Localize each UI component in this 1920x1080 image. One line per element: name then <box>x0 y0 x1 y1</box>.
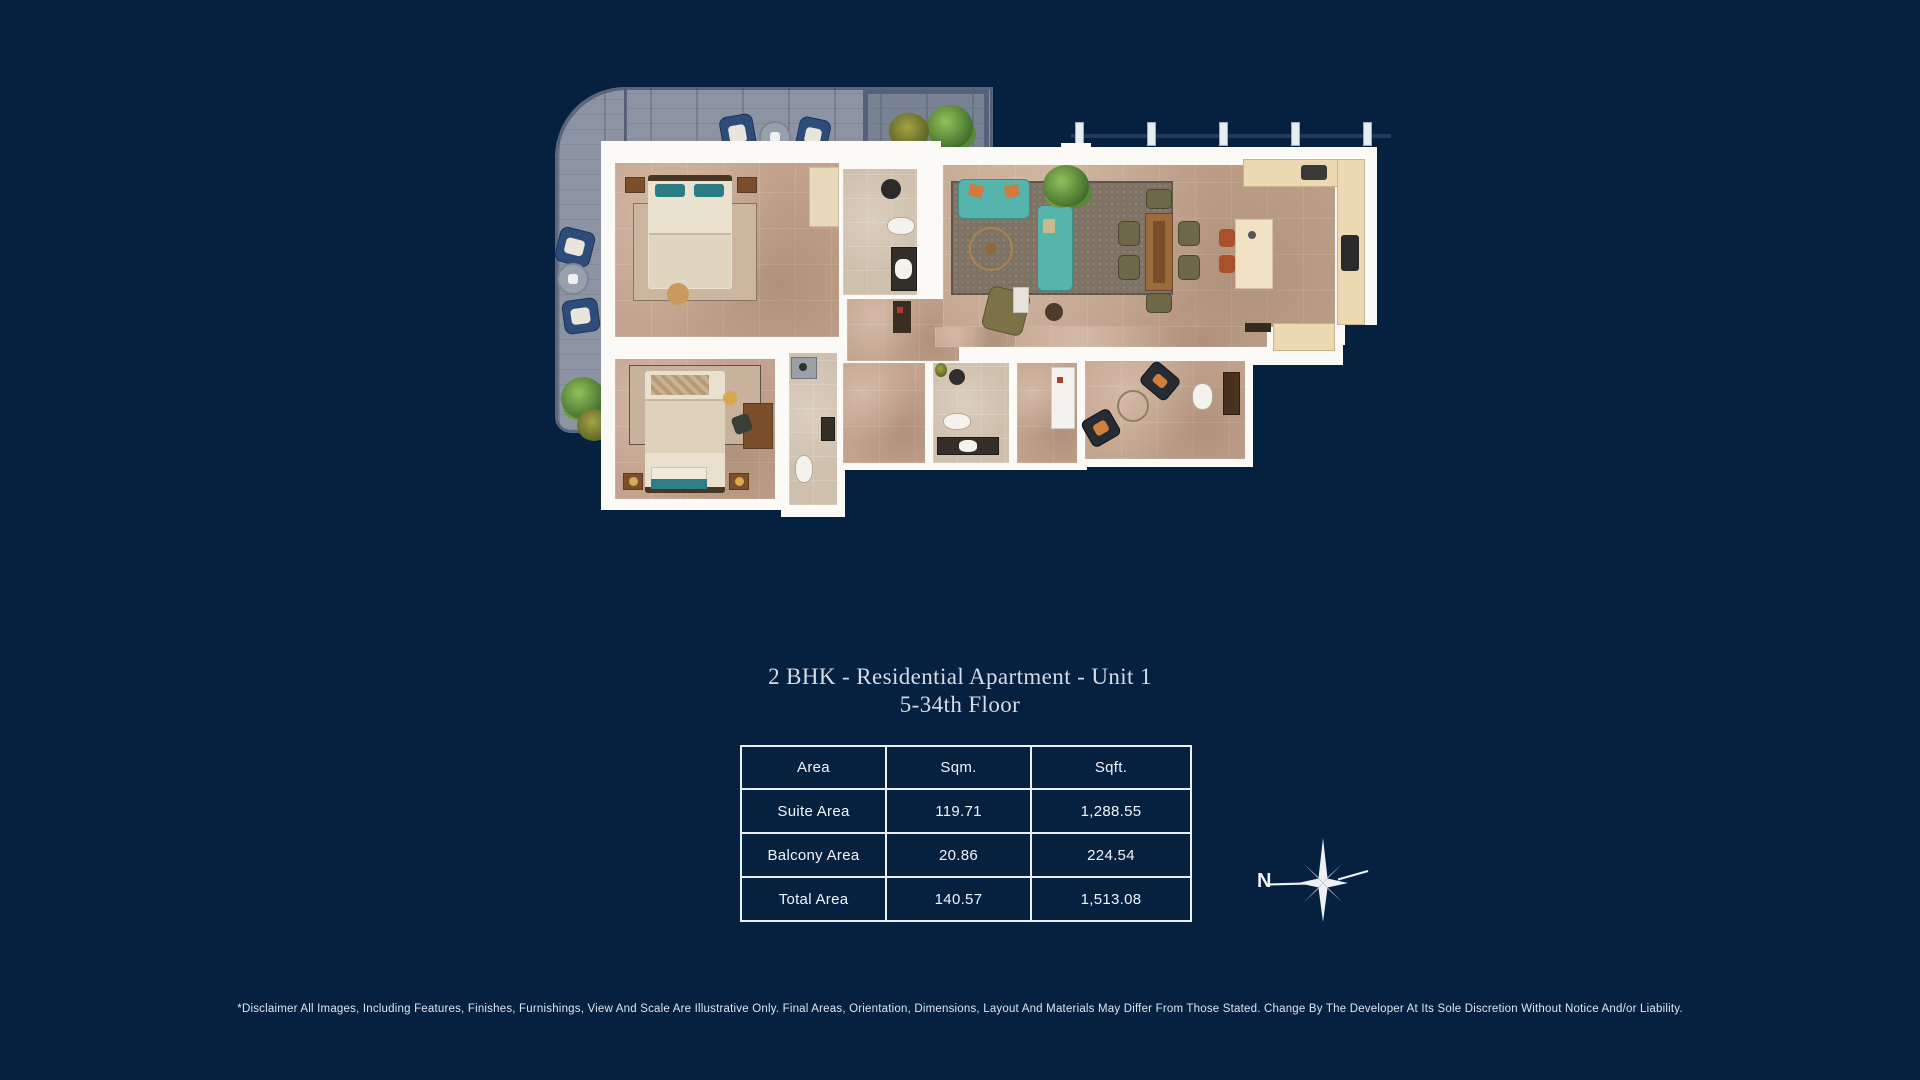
window-mullion <box>1219 122 1228 146</box>
bathroom-plant <box>935 363 947 377</box>
window-mullion <box>1147 122 1156 146</box>
balcony-armchair <box>561 297 601 336</box>
kitchen-sink <box>1301 165 1327 180</box>
sqm-value: 20.86 <box>886 833 1031 877</box>
toilet <box>1192 383 1213 410</box>
dining-chair <box>1178 221 1200 246</box>
toilet <box>795 455 813 483</box>
row-label: Suite Area <box>741 789 886 833</box>
dining-chair <box>1118 255 1140 280</box>
area-table: Area Sqm. Sqft. Suite Area 119.71 1,288.… <box>740 745 1192 922</box>
entry-shelf <box>893 301 911 333</box>
kitchen-island <box>1235 219 1273 289</box>
plan-title-line2: 5-34th Floor <box>0 691 1920 719</box>
hall-floor <box>843 363 925 463</box>
kitchen-counter <box>1273 323 1335 351</box>
bar-stool <box>1219 255 1235 273</box>
col-header-sqft: Sqft. <box>1031 746 1191 789</box>
dining-chair <box>1146 293 1172 313</box>
disclaimer-text: *Disclaimer All Images, Including Featur… <box>0 1003 1920 1015</box>
sofa <box>1037 205 1073 291</box>
plan-title: 2 BHK - Residential Apartment - Unit 1 5… <box>0 663 1920 719</box>
balcony-round-table <box>557 263 589 295</box>
plan-title-line1: 2 BHK - Residential Apartment - Unit 1 <box>0 663 1920 691</box>
bed-pillow <box>694 184 724 197</box>
dining-chair <box>1146 189 1172 209</box>
bed-bench <box>651 375 709 395</box>
table-row: Balcony Area 20.86 224.54 <box>741 833 1191 877</box>
shower-drain <box>949 369 965 385</box>
col-header-area: Area <box>741 746 886 789</box>
sofa-pillow <box>1004 184 1020 198</box>
sqm-value: 140.57 <box>886 877 1031 921</box>
vanity <box>1223 372 1240 415</box>
sqft-value: 1,288.55 <box>1031 789 1191 833</box>
window-mullion <box>1363 122 1372 146</box>
bed-blanket <box>649 233 731 288</box>
bed-throw <box>651 479 707 489</box>
row-label: Balcony Area <box>741 833 886 877</box>
table-row: Suite Area 119.71 1,288.55 <box>741 789 1191 833</box>
coffee-table-decor <box>985 243 997 255</box>
dining-chair <box>1118 221 1140 246</box>
wash-basin <box>959 440 977 452</box>
island-tap <box>1248 231 1256 239</box>
table-row: Total Area 140.57 1,513.08 <box>741 877 1191 921</box>
compass-north-label: N <box>1257 870 1272 893</box>
nightstand <box>625 177 645 193</box>
page: 2 BHK - Residential Apartment - Unit 1 5… <box>0 0 1920 1080</box>
sink-bowl <box>881 179 901 199</box>
foyer-floor <box>1015 327 1267 347</box>
bed-pillow <box>655 184 685 197</box>
ottoman <box>667 283 689 305</box>
table-header-row: Area Sqm. Sqft. <box>741 746 1191 789</box>
lamp <box>735 477 744 486</box>
hall-cabinet <box>1051 367 1075 429</box>
sqft-value: 1,513.08 <box>1031 877 1191 921</box>
bed-blanket <box>645 399 725 453</box>
toilet <box>887 217 915 235</box>
oven <box>1341 235 1359 271</box>
sofa <box>958 179 1030 219</box>
sink <box>821 417 835 441</box>
row-label: Total Area <box>741 877 886 921</box>
floor-mat <box>1013 287 1029 313</box>
dining-chair <box>1178 255 1200 280</box>
wardrobe <box>809 167 839 227</box>
den-round-table <box>1117 390 1149 422</box>
shelf-decor <box>1057 377 1063 383</box>
stool <box>723 391 737 405</box>
side-table <box>1045 303 1063 321</box>
shelf-decor <box>897 307 903 313</box>
nightstand <box>737 177 757 193</box>
wash-basin <box>895 259 912 279</box>
bar-stool <box>1219 229 1235 247</box>
shower-drain <box>799 363 807 371</box>
window-rail <box>1071 134 1391 138</box>
col-header-sqm: Sqm. <box>886 746 1031 789</box>
living-plant <box>1043 165 1089 207</box>
lamp <box>629 477 638 486</box>
window-mullion <box>1291 122 1300 146</box>
kitchen-cabinet <box>1245 323 1271 332</box>
floor-plan <box>545 85 1395 520</box>
sqft-value: 224.54 <box>1031 833 1191 877</box>
sqm-value: 119.71 <box>886 789 1031 833</box>
dining-table-runner <box>1153 221 1165 283</box>
toilet <box>943 413 971 430</box>
sofa-pillow <box>1043 219 1055 233</box>
